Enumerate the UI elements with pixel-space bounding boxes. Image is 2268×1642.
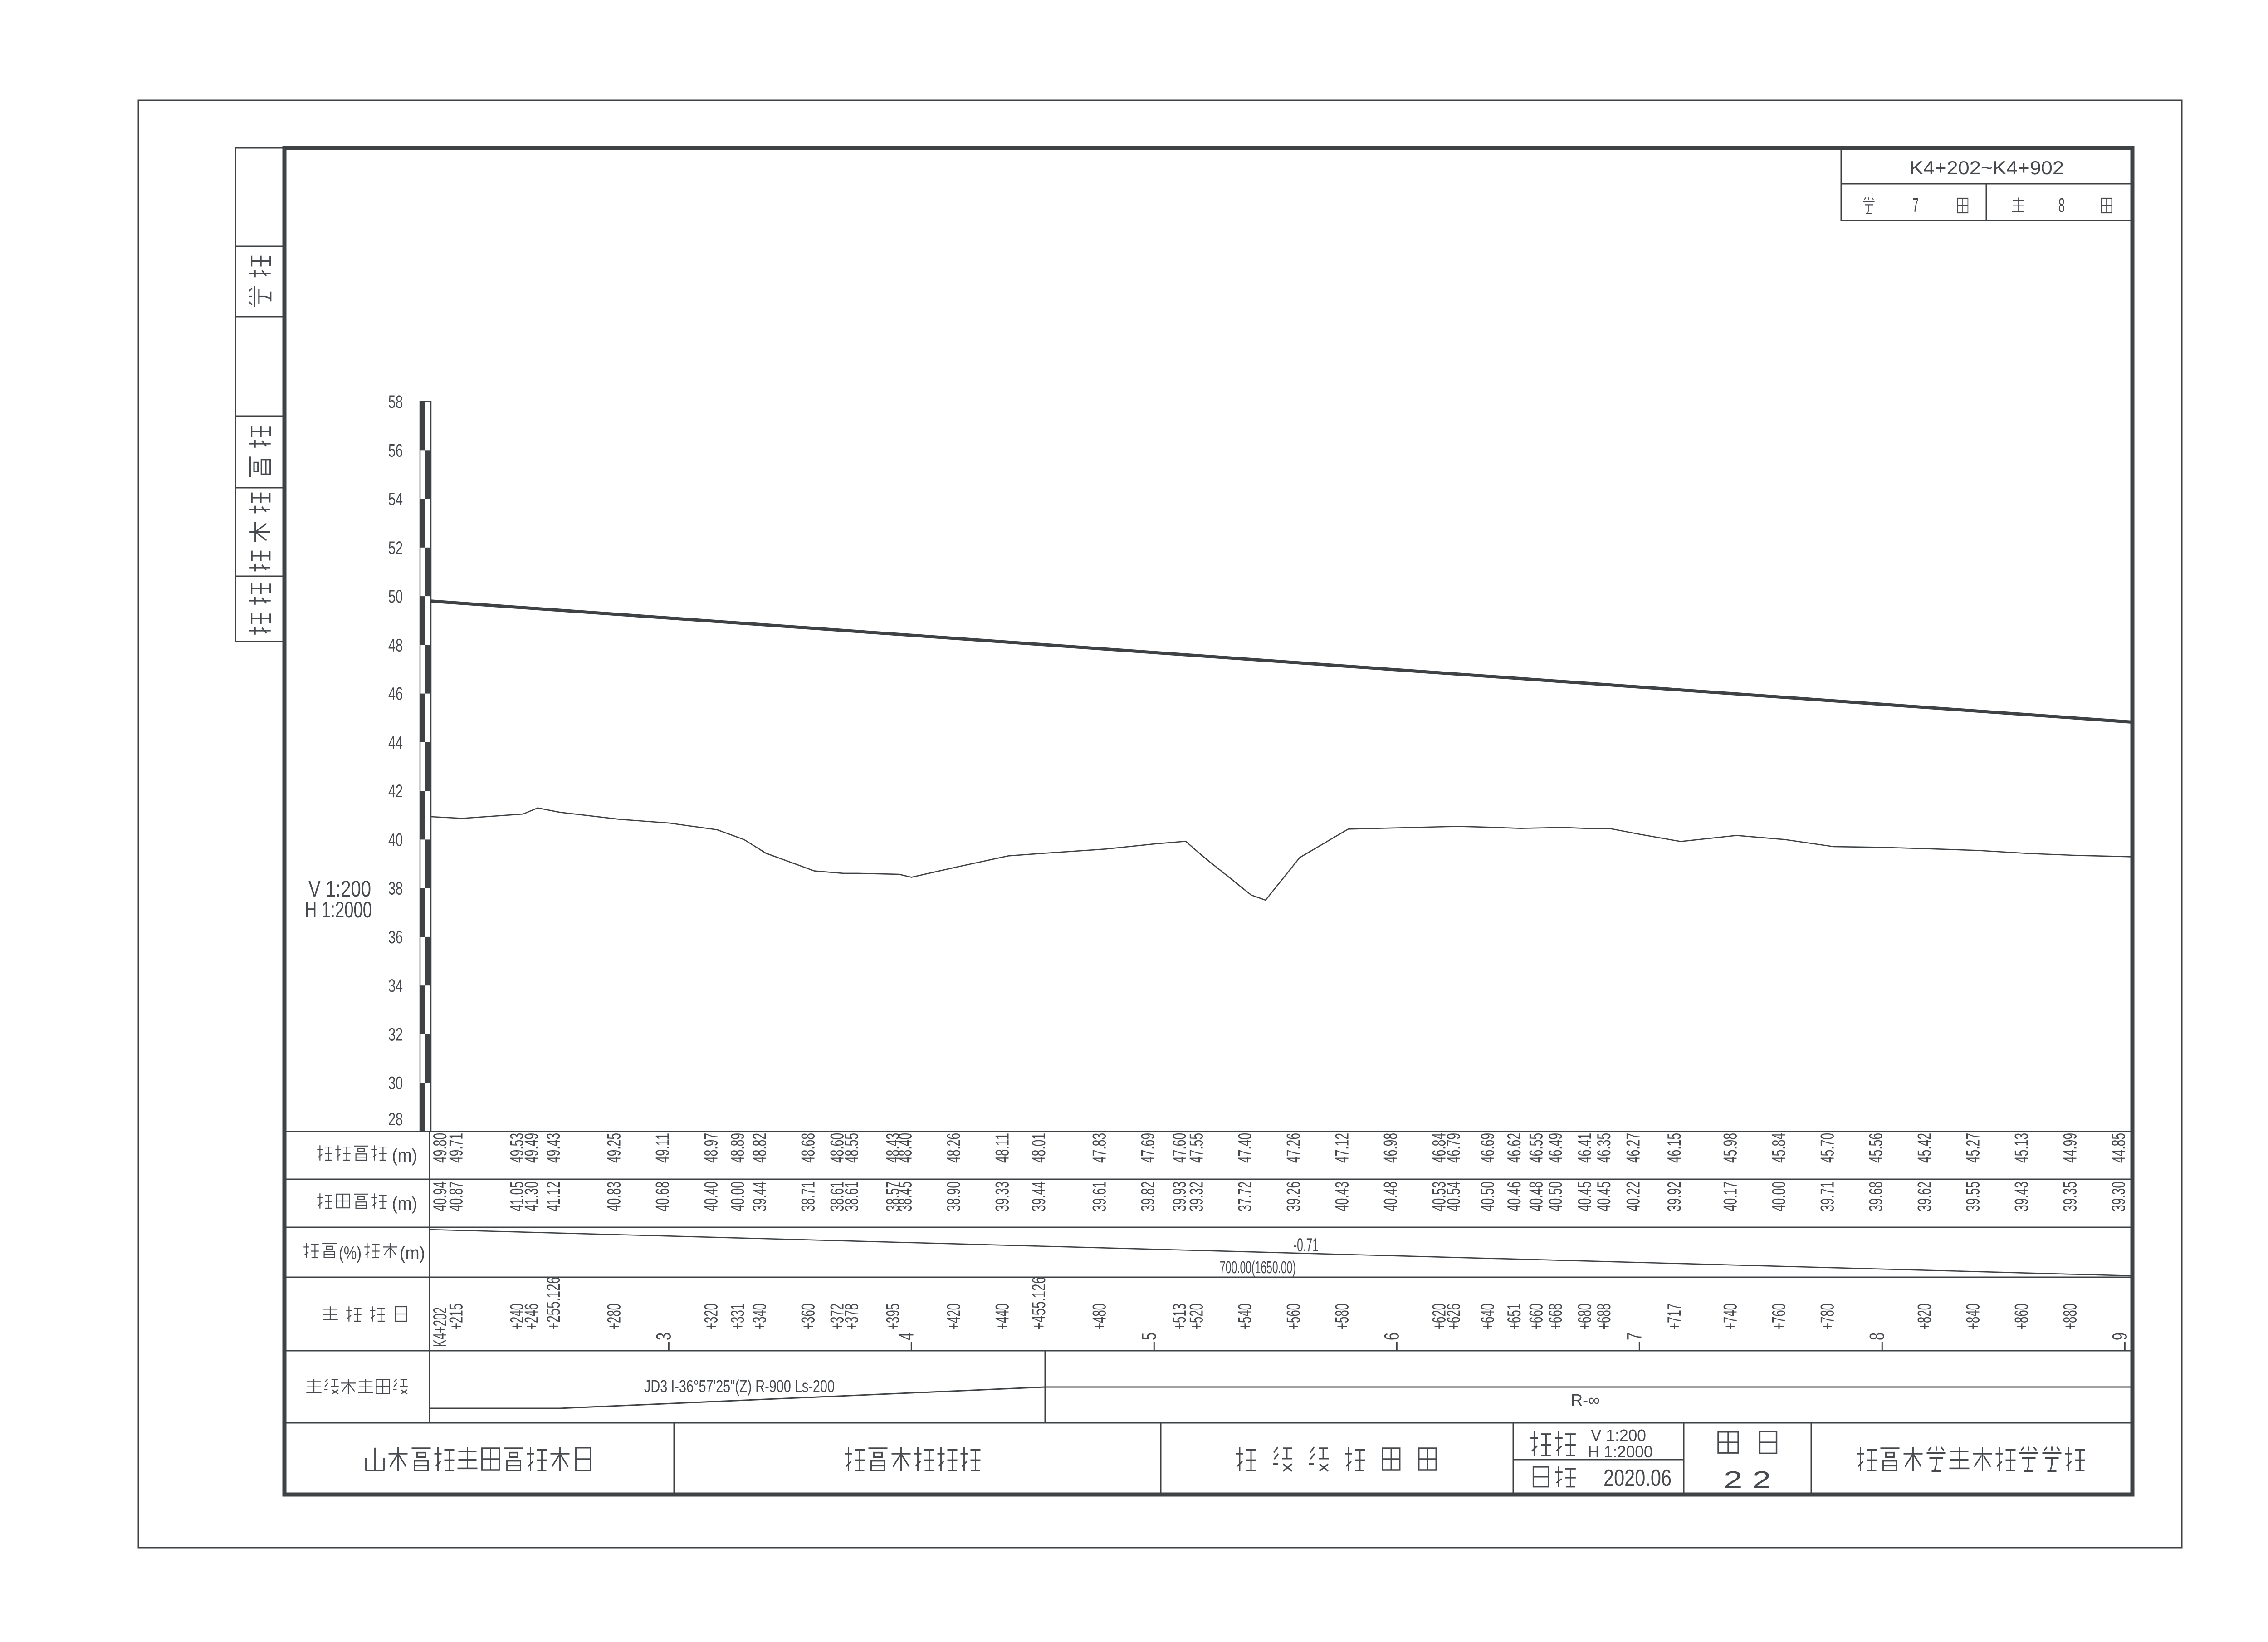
svg-text:39.61: 39.61 — [1088, 1181, 1110, 1211]
svg-text:39.43: 39.43 — [2010, 1181, 2032, 1211]
svg-text:40.00: 40.00 — [727, 1181, 748, 1211]
svg-text:8: 8 — [1865, 1333, 1888, 1340]
svg-text:39.32: 39.32 — [1185, 1181, 1207, 1211]
svg-text:40.54: 40.54 — [1442, 1181, 1464, 1211]
svg-text:V 1:200: V 1:200 — [1591, 1426, 1646, 1445]
svg-text:8: 8 — [2058, 194, 2065, 216]
svg-text:7: 7 — [1623, 1333, 1646, 1340]
svg-text:39.55: 39.55 — [1962, 1181, 1983, 1211]
svg-text:40.43: 40.43 — [1331, 1181, 1352, 1211]
svg-text:39.68: 39.68 — [1865, 1181, 1886, 1211]
svg-text:42: 42 — [388, 781, 403, 801]
svg-text:39.82: 39.82 — [1137, 1181, 1158, 1211]
svg-text:41.30: 41.30 — [520, 1181, 542, 1211]
svg-text:39.26: 39.26 — [1282, 1181, 1304, 1211]
svg-text:+688: +688 — [1593, 1304, 1614, 1330]
svg-text:32: 32 — [388, 1025, 403, 1045]
svg-text:+280: +280 — [603, 1304, 624, 1330]
svg-text:+215: +215 — [445, 1304, 467, 1330]
svg-text:40.83: 40.83 — [603, 1181, 624, 1211]
svg-text:46.69: 46.69 — [1476, 1133, 1498, 1163]
svg-text:54: 54 — [388, 490, 403, 510]
svg-text:+520: +520 — [1185, 1304, 1207, 1330]
svg-text:45.84: 45.84 — [1768, 1133, 1789, 1163]
svg-text:+880: +880 — [2059, 1304, 2080, 1330]
svg-text:49.71: 49.71 — [445, 1133, 467, 1163]
svg-text:K4+202~K4+902: K4+202~K4+902 — [1910, 157, 2064, 178]
svg-text:44.99: 44.99 — [2059, 1133, 2080, 1163]
svg-text:+331: +331 — [727, 1304, 748, 1330]
svg-text:48.55: 48.55 — [841, 1133, 862, 1163]
svg-text:39.33: 39.33 — [991, 1181, 1012, 1211]
svg-text:34: 34 — [388, 976, 403, 996]
svg-text:40.68: 40.68 — [651, 1181, 673, 1211]
svg-text:+760: +760 — [1768, 1304, 1789, 1330]
svg-text:49.43: 49.43 — [543, 1133, 564, 1163]
svg-text:700.00(1650.00): 700.00(1650.00) — [1220, 1258, 1296, 1277]
svg-text:-0.71: -0.71 — [1293, 1234, 1319, 1255]
svg-text:+395: +395 — [882, 1304, 904, 1330]
svg-text:38.71: 38.71 — [797, 1181, 818, 1211]
svg-text:38.90: 38.90 — [943, 1181, 964, 1211]
svg-text:+320: +320 — [700, 1304, 721, 1330]
svg-text:56: 56 — [388, 441, 403, 461]
svg-text:28: 28 — [388, 1109, 403, 1129]
svg-text:39.44: 39.44 — [748, 1181, 770, 1211]
svg-text:39.92: 39.92 — [1663, 1181, 1685, 1211]
svg-text:47.55: 47.55 — [1185, 1133, 1207, 1163]
svg-text:30: 30 — [388, 1073, 403, 1093]
svg-text:2020.06: 2020.06 — [1603, 1465, 1672, 1491]
svg-text:38.45: 38.45 — [894, 1181, 915, 1211]
svg-text:47.12: 47.12 — [1331, 1133, 1352, 1163]
svg-text:45.70: 45.70 — [1816, 1133, 1838, 1163]
svg-text:+420: +420 — [943, 1304, 964, 1330]
svg-text:49.11: 49.11 — [651, 1133, 673, 1163]
svg-text:(%): (%) — [339, 1243, 362, 1263]
svg-text:9: 9 — [2108, 1333, 2131, 1340]
svg-text:45.27: 45.27 — [1962, 1133, 1983, 1163]
svg-text:47.83: 47.83 — [1088, 1133, 1110, 1163]
svg-text:4: 4 — [894, 1333, 918, 1340]
svg-text:39.35: 39.35 — [2059, 1181, 2080, 1211]
svg-text:46.98: 46.98 — [1379, 1133, 1401, 1163]
svg-text:+455.126: +455.126 — [1028, 1277, 1049, 1330]
svg-text:+378: +378 — [841, 1304, 862, 1330]
svg-text:40.46: 40.46 — [1503, 1181, 1525, 1211]
svg-text:52: 52 — [388, 538, 403, 558]
svg-text:+360: +360 — [797, 1304, 818, 1330]
svg-text:40.48: 40.48 — [1525, 1181, 1546, 1211]
svg-text:H 1:2000: H 1:2000 — [1588, 1442, 1653, 1461]
svg-text:47.69: 47.69 — [1137, 1133, 1158, 1163]
svg-text:+480: +480 — [1088, 1304, 1110, 1330]
svg-text:44: 44 — [388, 733, 403, 753]
svg-text:(m): (m) — [400, 1243, 425, 1263]
svg-text:46.27: 46.27 — [1622, 1133, 1643, 1163]
svg-text:39.44: 39.44 — [1028, 1181, 1049, 1211]
svg-text:48.97: 48.97 — [700, 1133, 721, 1163]
svg-text:39.30: 39.30 — [2107, 1181, 2129, 1211]
svg-text:48.11: 48.11 — [991, 1133, 1012, 1163]
svg-text:48.89: 48.89 — [727, 1133, 748, 1163]
svg-text:40.50: 40.50 — [1545, 1181, 1566, 1211]
svg-text:40.40: 40.40 — [700, 1181, 721, 1211]
svg-text:40.45: 40.45 — [1593, 1181, 1614, 1211]
svg-text:46.79: 46.79 — [1442, 1133, 1464, 1163]
svg-text:40: 40 — [388, 830, 403, 850]
svg-text:47.26: 47.26 — [1282, 1133, 1304, 1163]
svg-text:40.48: 40.48 — [1379, 1181, 1401, 1211]
svg-text:47.40: 47.40 — [1234, 1133, 1255, 1163]
svg-text:+640: +640 — [1476, 1304, 1498, 1330]
svg-text:+840: +840 — [1962, 1304, 1983, 1330]
svg-text:46.35: 46.35 — [1593, 1133, 1614, 1163]
svg-text:+560: +560 — [1282, 1304, 1304, 1330]
svg-text:46.15: 46.15 — [1663, 1133, 1685, 1163]
svg-text:40.45: 40.45 — [1574, 1181, 1595, 1211]
svg-text:+668: +668 — [1545, 1304, 1566, 1330]
svg-text:+680: +680 — [1574, 1304, 1595, 1330]
svg-text:36: 36 — [388, 927, 403, 947]
svg-text:JD3 I-36°57'25"(Z) R-900 Ls-20: JD3 I-36°57'25"(Z) R-900 Ls-200 — [644, 1377, 835, 1396]
svg-text:40.87: 40.87 — [445, 1181, 467, 1211]
svg-text:44.85: 44.85 — [2107, 1133, 2129, 1163]
svg-text:+255.126: +255.126 — [543, 1277, 564, 1330]
svg-text:(m): (m) — [392, 1194, 417, 1214]
svg-text:37.72: 37.72 — [1234, 1181, 1255, 1211]
svg-text:5: 5 — [1137, 1333, 1160, 1340]
svg-text:39.62: 39.62 — [1913, 1181, 1935, 1211]
svg-text:46.49: 46.49 — [1545, 1133, 1566, 1163]
svg-text:2 2: 2 2 — [1724, 1466, 1771, 1494]
svg-text:48.40: 48.40 — [894, 1133, 915, 1163]
svg-text:49.49: 49.49 — [520, 1133, 542, 1163]
svg-text:6: 6 — [1380, 1333, 1403, 1340]
svg-text:49.25: 49.25 — [603, 1133, 624, 1163]
svg-text:45.98: 45.98 — [1719, 1133, 1740, 1163]
svg-text:3: 3 — [652, 1333, 675, 1340]
svg-text:48.82: 48.82 — [748, 1133, 770, 1163]
svg-text:7: 7 — [1912, 194, 1919, 216]
svg-text:38.61: 38.61 — [841, 1181, 862, 1211]
svg-text:(m): (m) — [392, 1146, 417, 1166]
svg-text:50: 50 — [388, 587, 403, 607]
svg-text:+717: +717 — [1663, 1304, 1685, 1330]
svg-text:+246: +246 — [520, 1304, 542, 1330]
svg-text:+340: +340 — [748, 1304, 770, 1330]
svg-text:48.01: 48.01 — [1028, 1133, 1049, 1163]
svg-text:46.55: 46.55 — [1525, 1133, 1546, 1163]
svg-text:46: 46 — [388, 684, 403, 704]
svg-text:40.22: 40.22 — [1622, 1181, 1643, 1211]
svg-text:40.17: 40.17 — [1719, 1181, 1740, 1211]
svg-text:48.26: 48.26 — [943, 1133, 964, 1163]
svg-text:40.50: 40.50 — [1476, 1181, 1498, 1211]
svg-text:45.56: 45.56 — [1865, 1133, 1886, 1163]
svg-text:+580: +580 — [1331, 1304, 1352, 1330]
svg-text:58: 58 — [388, 392, 403, 412]
svg-text:45.42: 45.42 — [1913, 1133, 1935, 1163]
svg-text:+820: +820 — [1913, 1304, 1935, 1330]
svg-text:+540: +540 — [1234, 1304, 1255, 1330]
svg-text:+740: +740 — [1719, 1304, 1740, 1330]
svg-text:+660: +660 — [1525, 1304, 1546, 1330]
svg-text:+626: +626 — [1442, 1304, 1464, 1330]
svg-text:39.71: 39.71 — [1816, 1181, 1838, 1211]
svg-text:45.13: 45.13 — [2010, 1133, 2032, 1163]
svg-text:H 1:2000: H 1:2000 — [305, 897, 372, 922]
svg-text:46.62: 46.62 — [1503, 1133, 1525, 1163]
svg-text:R-∞: R-∞ — [1571, 1391, 1600, 1409]
svg-text:38: 38 — [388, 879, 403, 899]
svg-text:48: 48 — [388, 635, 403, 655]
svg-text:40.00: 40.00 — [1768, 1181, 1789, 1211]
svg-text:41.12: 41.12 — [543, 1181, 564, 1211]
svg-text:+860: +860 — [2010, 1304, 2032, 1330]
svg-text:+440: +440 — [991, 1304, 1012, 1330]
svg-text:48.68: 48.68 — [797, 1133, 818, 1163]
svg-text:+651: +651 — [1503, 1304, 1525, 1330]
svg-text:+780: +780 — [1816, 1304, 1838, 1330]
svg-text:46.41: 46.41 — [1574, 1133, 1595, 1163]
